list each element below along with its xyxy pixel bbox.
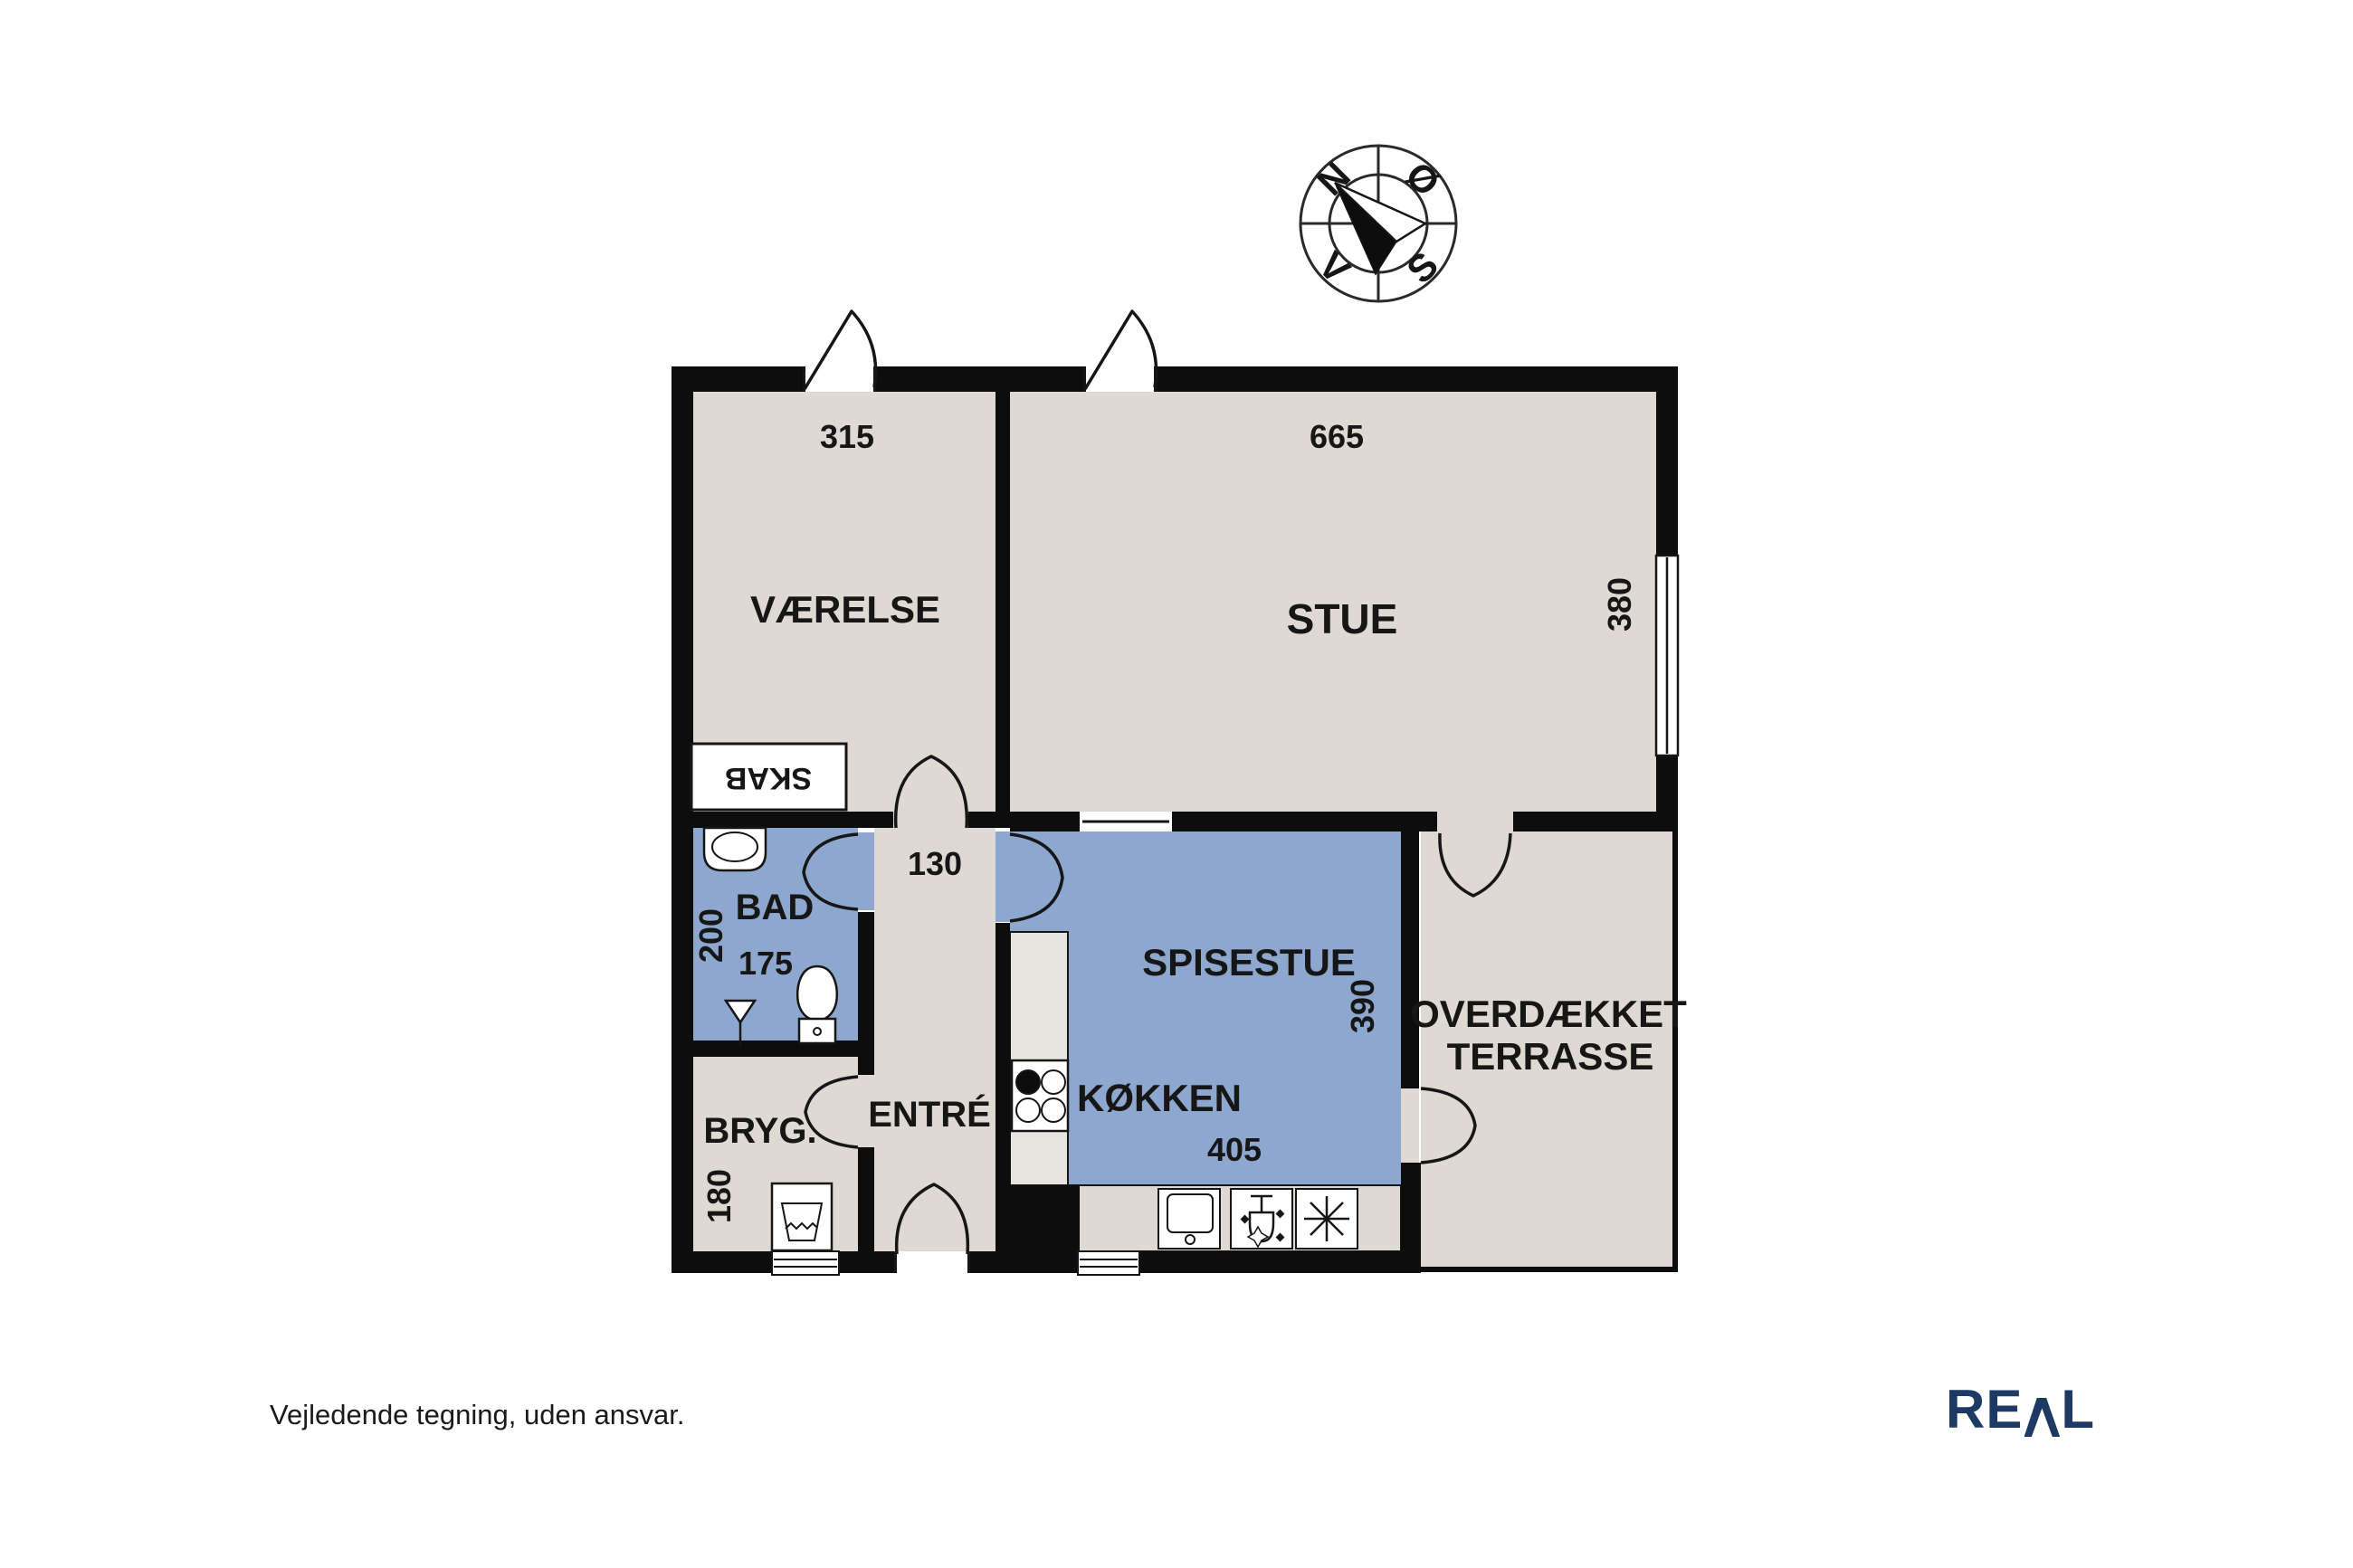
stue-door-opening	[1083, 366, 1157, 392]
bad-width: 175	[738, 945, 793, 982]
wall-block-koekken-sw	[995, 1185, 1080, 1273]
bryg-depth: 180	[700, 1169, 738, 1223]
toilet	[797, 966, 837, 1043]
wall-stue-south-b	[1172, 812, 1437, 832]
washing-machine	[772, 1183, 832, 1250]
door-jamb	[894, 1251, 897, 1273]
compass-rose: N Ø S V	[1300, 146, 1456, 301]
floor-plan-drawing: SKAB 315 VÆRELSE 665 STUE 380 130 BAD 20…	[0, 0, 2353, 1568]
entre-hall-width: 130	[908, 845, 962, 882]
kitchen-counter-left	[1010, 932, 1068, 1185]
logo-letters-re: RE	[1946, 1383, 2023, 1437]
koekken-door-opening	[995, 832, 1010, 922]
dishwasher	[1231, 1189, 1292, 1249]
kitchen-sink	[1158, 1189, 1220, 1249]
wall-bad-south	[672, 1041, 874, 1057]
wall-stue-south-a	[1010, 812, 1080, 832]
wall-under-vaerelse-right	[968, 812, 1010, 828]
koekken-label: KØKKEN	[1077, 1077, 1242, 1119]
stue-depth: 380	[1601, 577, 1638, 632]
spisestue-depth: 390	[1344, 979, 1381, 1033]
terrasse-border-bottom	[1421, 1267, 1678, 1272]
wall-spisestue-terrasse	[1401, 832, 1419, 1088]
koekken-width: 405	[1207, 1131, 1262, 1168]
entre-floor	[874, 828, 995, 1251]
skab-label: SKAB	[725, 761, 812, 795]
bathroom-sink	[704, 828, 766, 870]
vaerelse-width: 315	[820, 418, 874, 455]
page: SKAB 315 VÆRELSE 665 STUE 380 130 BAD 20…	[0, 0, 2353, 1568]
door-jamb	[967, 1251, 970, 1273]
bryg-window	[772, 1251, 839, 1275]
wall-block-koekken-se	[1401, 1163, 1421, 1267]
wall-bryg-east-upper	[858, 1057, 874, 1077]
stue-width: 665	[1310, 418, 1364, 455]
wall-bryg-east-lower	[858, 1147, 874, 1251]
bad-depth: 200	[692, 908, 729, 963]
stue-label: STUE	[1287, 595, 1398, 642]
cooktop	[1012, 1060, 1068, 1131]
spisestue-label: SPISESTUE	[1142, 941, 1356, 984]
wall-vaerelse-stue	[995, 392, 1010, 828]
terrasse-label-line2: TERRASSE	[1447, 1035, 1654, 1078]
wall-under-vaerelse-left	[672, 812, 893, 828]
bryg-label: BRYG.	[703, 1111, 816, 1151]
koekken-window	[1078, 1251, 1139, 1275]
stue-terrasse-opening	[1437, 812, 1513, 832]
logo-letter-l: L	[2061, 1383, 2095, 1437]
vaerelse-door-opening	[803, 366, 876, 392]
logo-letter-a	[2024, 1398, 2061, 1437]
wall-terrasse-north	[1513, 812, 1678, 832]
entre-vaerelse-opening	[893, 810, 968, 830]
real-logo: REL	[1946, 1383, 2095, 1437]
bad-door-opening	[858, 832, 874, 910]
terrasse-border-right	[1672, 832, 1678, 1272]
terrasse-label-line1: OVERDÆKKET	[1410, 993, 1687, 1035]
entrance-opening	[894, 1251, 970, 1273]
bad-label: BAD	[736, 888, 814, 927]
vaerelse-label: VÆRELSE	[750, 588, 940, 631]
koekken-terrasse-opening	[1401, 1088, 1419, 1163]
entre-label: ENTRÉ	[868, 1094, 991, 1135]
disclaimer-text: Vejledende tegning, uden ansvar.	[270, 1399, 685, 1431]
freezer-symbol	[1296, 1189, 1357, 1249]
wall-bad-east	[858, 912, 874, 1059]
skab-closet: SKAB	[691, 744, 846, 810]
